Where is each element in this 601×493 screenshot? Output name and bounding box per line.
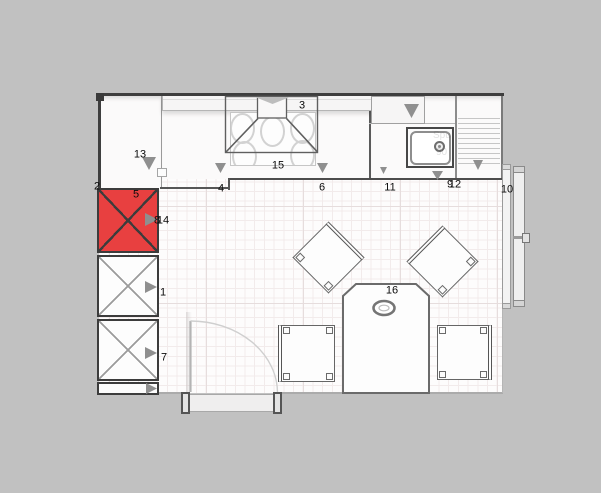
chair-leg-icon (439, 371, 446, 378)
counter-front-edge-left (160, 187, 229, 189)
table-centerpiece-icon (374, 301, 395, 315)
wall-left (98, 93, 101, 190)
chair-leg-icon (437, 284, 447, 294)
burner-icon (260, 116, 285, 147)
sink-run-divider (455, 96, 457, 180)
chair-right[interactable] (437, 325, 492, 380)
sink-basin (410, 131, 451, 165)
counter-front-edge-main (228, 178, 503, 181)
door-post-left (181, 392, 190, 414)
window-sill-cap-bottom (502, 303, 511, 309)
cooktop[interactable] (230, 112, 316, 166)
dining-table[interactable] (343, 284, 429, 393)
chair-leg-icon (326, 373, 333, 380)
window-sill-cap-top (502, 164, 511, 170)
door-leaf-shadow (186, 312, 192, 392)
sink-drain-dot (438, 145, 441, 148)
window-cap-top (513, 166, 525, 173)
drainer-board (458, 118, 500, 168)
plinth-cabinet[interactable] (97, 382, 159, 395)
chair-leg-icon (480, 327, 487, 334)
base-cabinet-7[interactable] (97, 319, 159, 381)
base-cabinet-1[interactable] (97, 255, 159, 317)
burner-icon (232, 141, 257, 167)
chair-leg-icon (480, 371, 487, 378)
door-post-right (273, 392, 282, 414)
chair-left[interactable] (278, 325, 335, 382)
chair-leg-icon (295, 252, 305, 262)
chair-leg-icon (323, 280, 333, 290)
chair-leg-icon (283, 327, 290, 334)
corner-joint-marker (157, 168, 167, 177)
chair-leg-icon (465, 256, 475, 266)
chair-leg-icon (439, 327, 446, 334)
window-cap-bottom (513, 300, 525, 307)
wall-corner-marker (96, 93, 104, 101)
worktop-corner[interactable] (100, 96, 162, 189)
wall-top (97, 93, 504, 96)
base-cabinet-5-selected[interactable] (97, 188, 159, 253)
burner-icon (230, 113, 255, 144)
plan-canvas[interactable]: 12345678910111213141516Spü90 (0, 0, 601, 493)
chair-leg-icon (283, 373, 290, 380)
window[interactable] (502, 164, 511, 309)
window-handle-icon (522, 233, 530, 243)
chair-leg-icon (326, 327, 333, 334)
wall-cabinet-over-sink[interactable] (371, 96, 425, 124)
counter-front-step (228, 178, 230, 190)
door-threshold[interactable] (186, 394, 281, 412)
burner-icon (290, 113, 315, 144)
